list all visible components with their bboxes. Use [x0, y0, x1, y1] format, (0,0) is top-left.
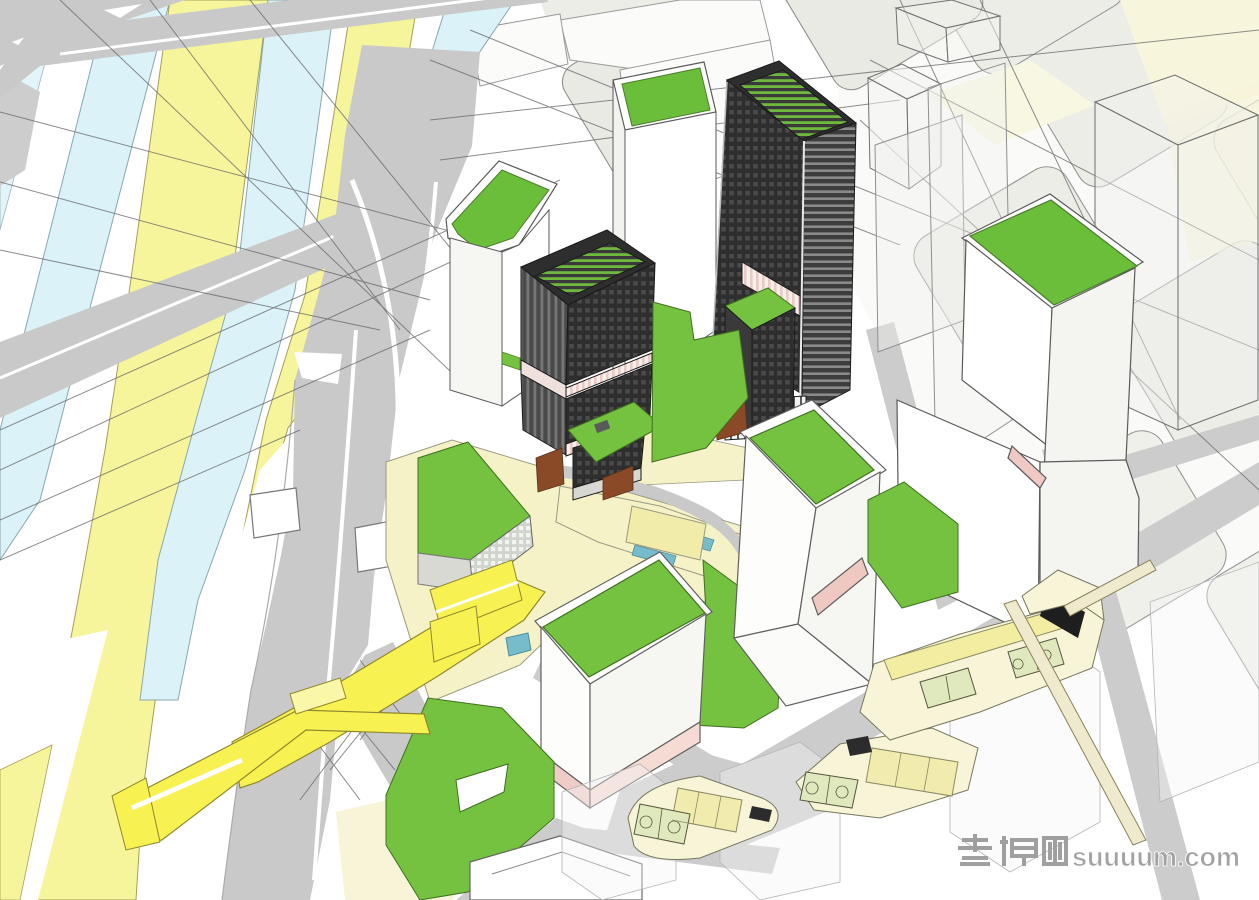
svg-text:suuuum.com: suuuum.com — [1072, 842, 1240, 872]
